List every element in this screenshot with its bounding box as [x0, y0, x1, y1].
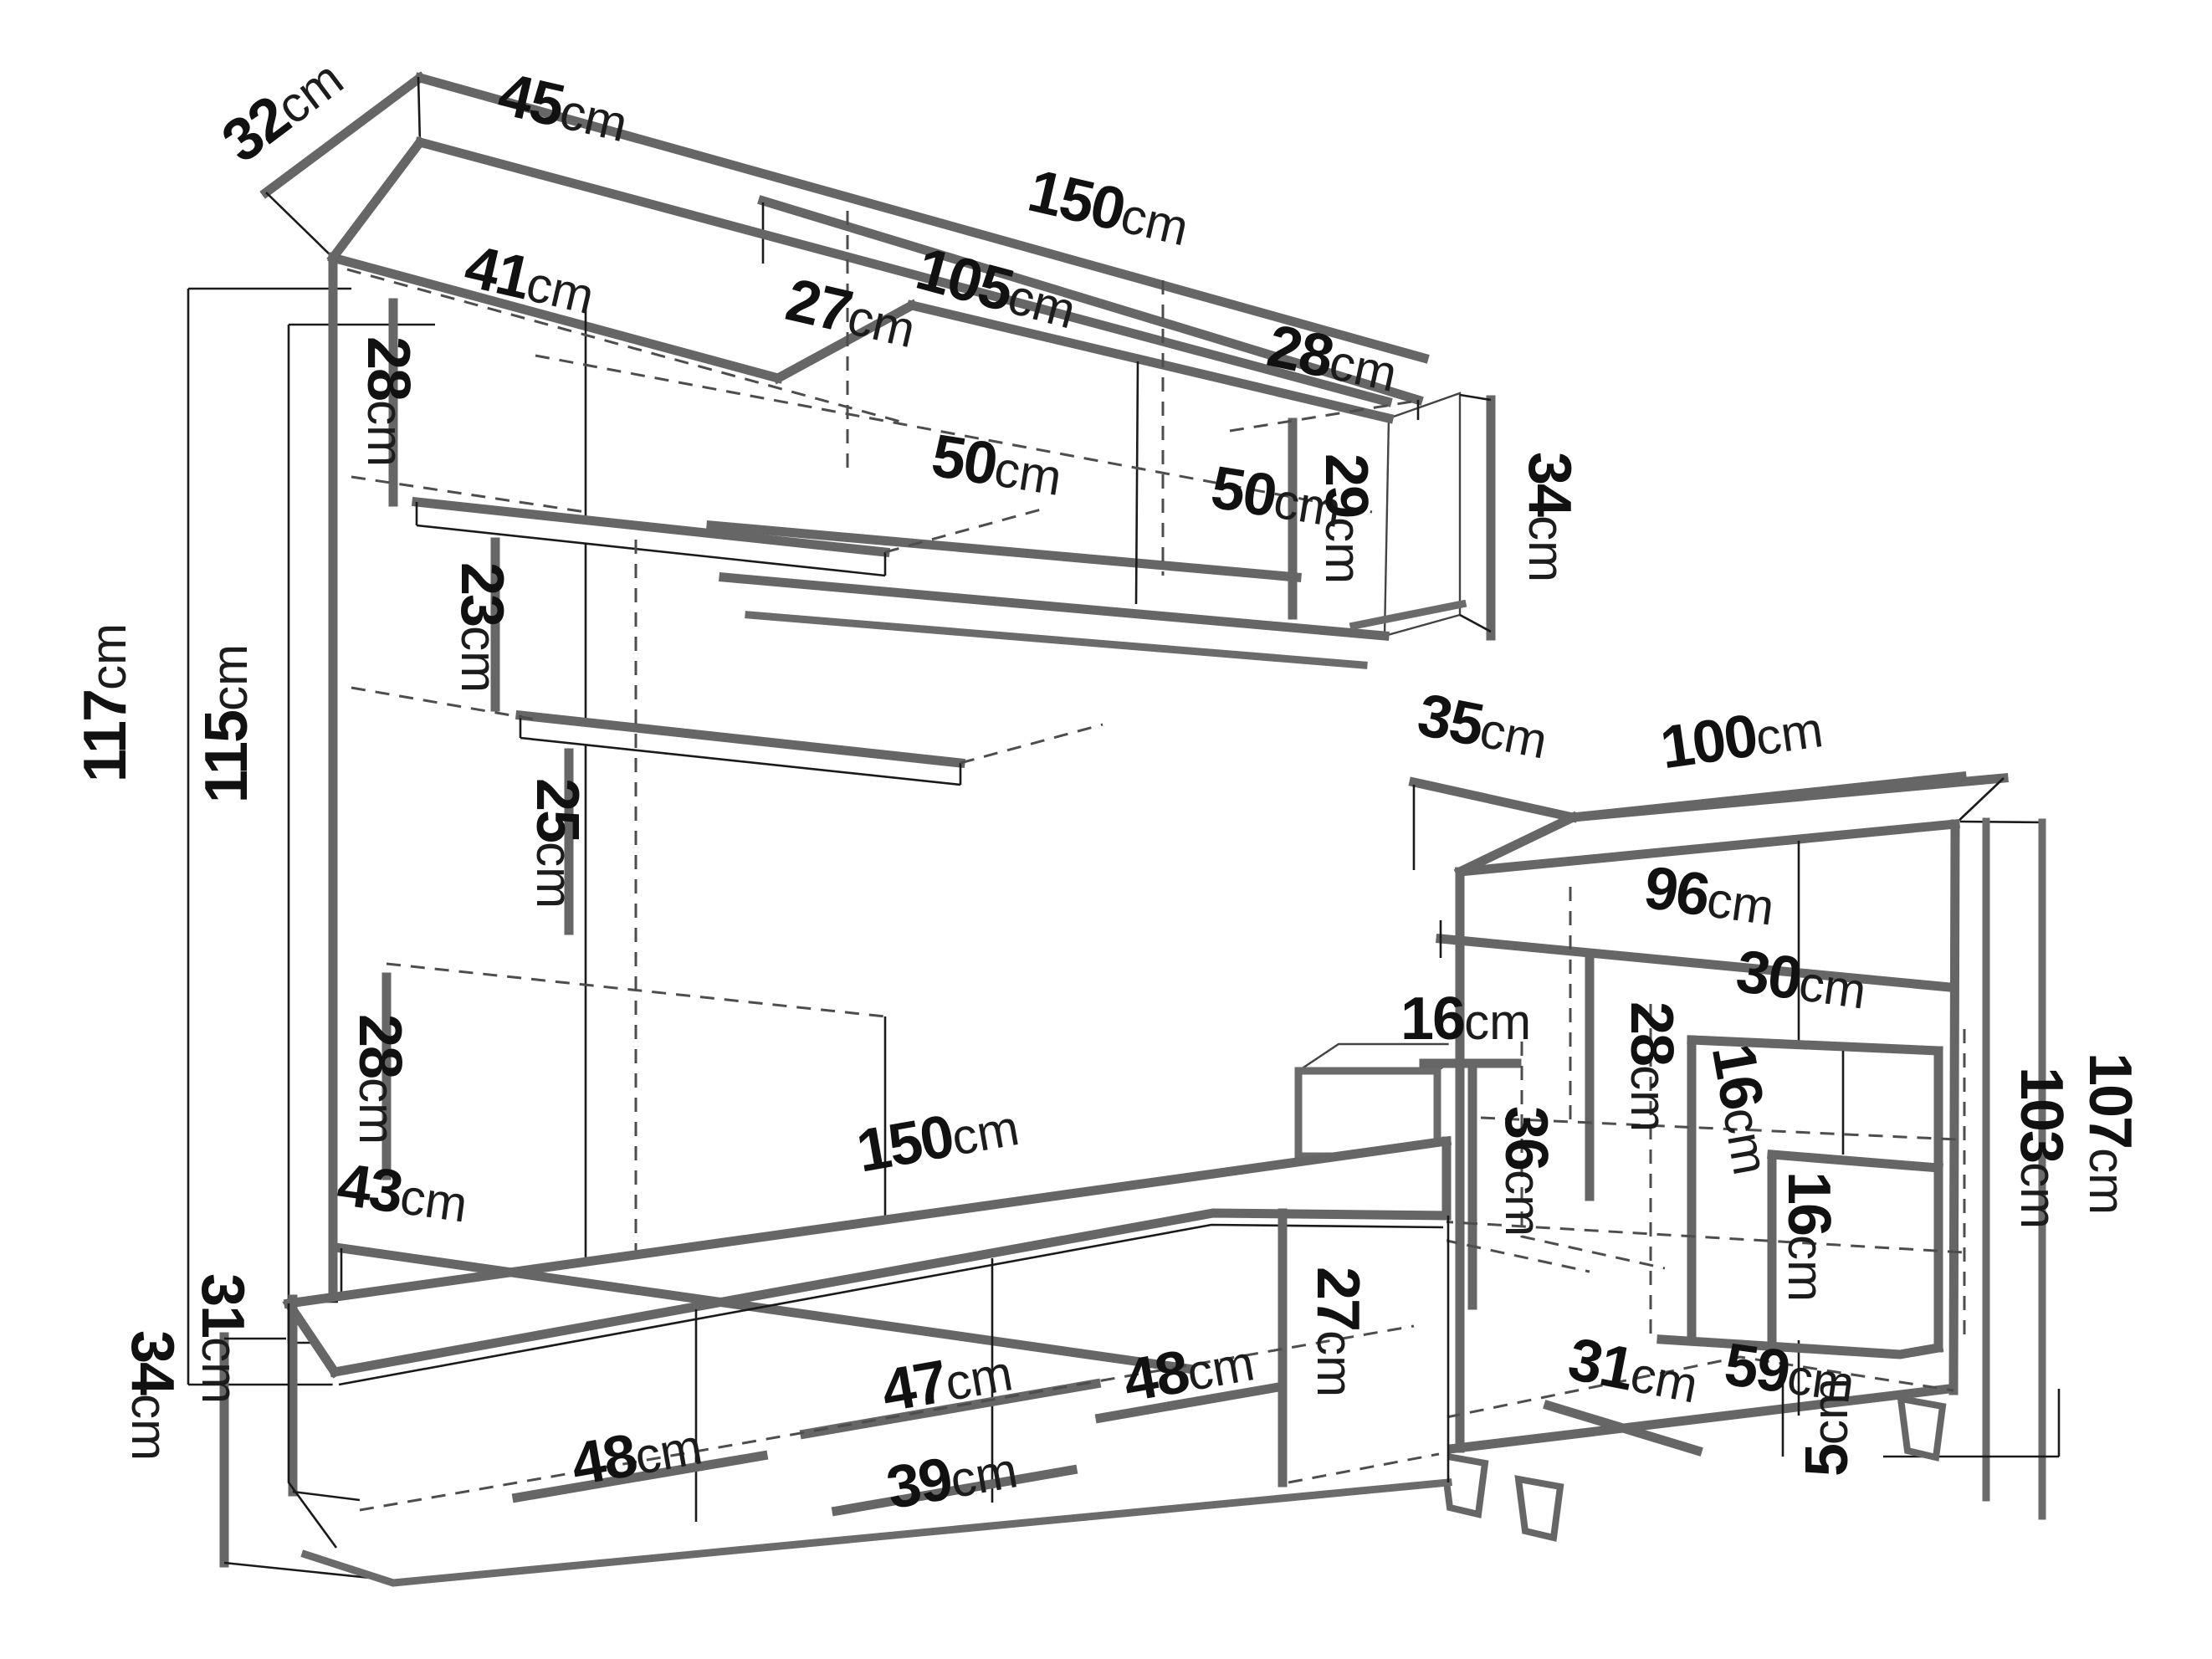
dim-wall-unit-end-inner-height: 29cm	[1313, 453, 1380, 584]
furniture-dimension-diagram: 32cm 45cm 150cm 105cm 41cm 27cm 28cm 50c…	[0, 0, 2212, 1659]
dim-wall-unit-end-height: 34cm	[1516, 452, 1583, 582]
dim-wall-unit-shelf-gap-lower: 25cm	[524, 778, 591, 909]
diagram-stage: 32cm 45cm 150cm 105cm 41cm 27cm 28cm 50c…	[0, 0, 2212, 1659]
dim-wall-unit-total-height: 117cm	[72, 623, 139, 782]
dim-wall-unit-bottom-section-height: 28cm	[346, 1014, 413, 1144]
dim-wall-unit-top-section-height: 28cm	[355, 336, 422, 467]
dim-cabinet-top-width: 100cm	[1656, 693, 1826, 781]
dim-cabinet-feet-height: 5cm	[1794, 1378, 1861, 1477]
dim-stand-right-section-height: 27cm	[1304, 1267, 1371, 1397]
dim-cabinet-niche-inner-height: 16cm	[1775, 1171, 1842, 1302]
dim-cabinet-carcass-height: 103cm	[2008, 1067, 2075, 1229]
dim-cabinet-side-shelf-depth: 16cm	[1400, 986, 1531, 1052]
dim-wall-unit-total-width: 150cm	[1022, 157, 1196, 259]
dim-stand-width: 150cm	[852, 1091, 1023, 1185]
dim-cabinet-top-depth: 35cm	[1412, 681, 1553, 771]
dim-cabinet-side-gap-height: 36cm	[1493, 1106, 1559, 1237]
dim-wall-unit-shelf-gap-upper: 23cm	[448, 562, 515, 693]
dim-stand-height: 34cm	[119, 1330, 186, 1461]
dim-cabinet-total-height: 107cm	[2076, 1052, 2143, 1215]
dim-wall-unit-column-top-width: 45cm	[492, 60, 634, 155]
dim-wall-unit-inner-height: 115cm	[193, 644, 260, 803]
dim-stand-inner-height: 31cm	[189, 1273, 256, 1404]
dim-wall-unit-depth-top: 32cm	[210, 44, 355, 176]
display-cabinet-drawing: 35cm 100cm 96cm 28cm 16cm 36cm 30cm 16cm…	[1400, 681, 2143, 1538]
dim-cabinet-top-inner-height: 28cm	[1618, 1001, 1685, 1132]
